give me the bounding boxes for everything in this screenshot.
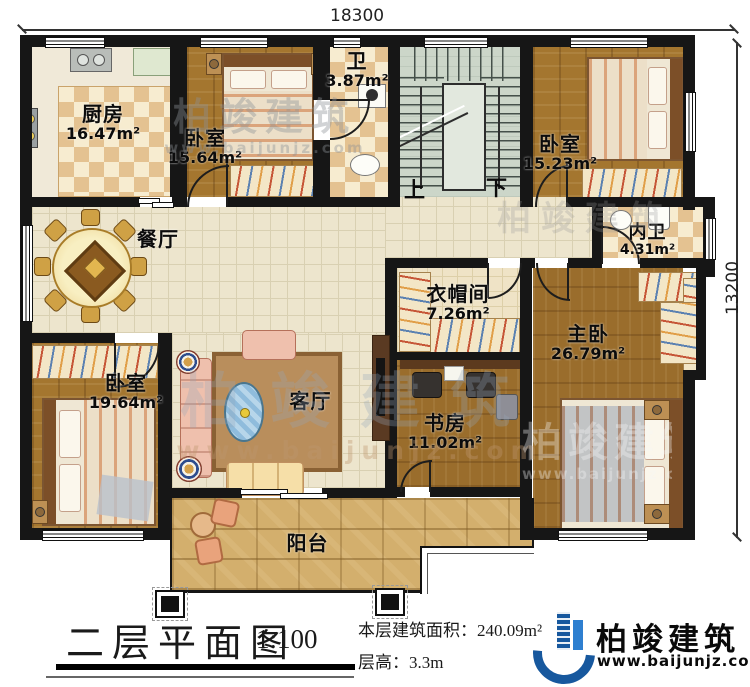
study-side-table: [496, 394, 518, 420]
cloakroom-area: 7.26m²: [398, 305, 518, 323]
logo-building-2: [573, 620, 583, 650]
top-dimension-label: 18300: [330, 6, 384, 26]
wall-kitchen-bedroom1: [170, 47, 187, 197]
study-label: 书房 11.02m²: [395, 412, 495, 452]
nightstand: [644, 504, 670, 524]
side-table-bottom: [176, 456, 202, 482]
wall-nook-right: [696, 268, 706, 370]
wall-kitchen-bottom: [20, 197, 140, 207]
wall-living-balcony-left: [172, 488, 242, 498]
nightstand: [32, 500, 48, 524]
armchair: [242, 330, 296, 360]
right-dimension-label: 13200: [723, 261, 743, 315]
table-decor: [240, 408, 250, 418]
stairs-up-label: 上: [404, 174, 425, 204]
drawing-scale: 1:100: [256, 624, 318, 655]
tv-cabinet: [372, 335, 390, 441]
floor-height-text: 层高：3.3m: [358, 648, 443, 673]
bedroom3-throw: [96, 475, 153, 522]
living-name: 客厅: [268, 390, 353, 412]
wall-living-balcony-right: [322, 488, 397, 498]
wall-bath-bottom: [330, 197, 400, 207]
bedroom2-side-window: [684, 92, 696, 152]
bedroom1-door-leaf: [226, 163, 228, 207]
study-pad: [444, 366, 464, 381]
bath-window: [333, 36, 361, 48]
cloakroom-label: 衣帽间 7.26m²: [398, 283, 518, 323]
kitchen-label: 厨房 16.47m²: [43, 103, 163, 143]
wall-bedroom1-bath-lower: [313, 140, 330, 197]
master-wardrobe-side: [660, 302, 698, 364]
study-name: 书房: [395, 412, 495, 434]
bedroom1-window: [200, 36, 268, 48]
wall-study-bottom: [430, 487, 522, 497]
study-chair-1: [412, 372, 442, 398]
living-label: 客厅: [268, 390, 353, 412]
inner-bath-window: [704, 218, 716, 260]
coffee-table: [224, 382, 264, 442]
bedroom2-label: 卧室 15.23m²: [505, 133, 615, 173]
balcony-notch: [420, 546, 534, 594]
pillow: [230, 70, 266, 89]
table-centerpiece: [64, 240, 126, 302]
title-underline-thick: [56, 664, 355, 670]
balcony-cushion-2: [194, 536, 224, 566]
wall-outer-right-lower: [683, 370, 695, 540]
bedroom1-area: 15.64m²: [150, 149, 260, 167]
nightstand: [206, 53, 222, 75]
column-right: [375, 588, 405, 616]
nightstand: [644, 400, 670, 420]
master-headboard: [669, 400, 682, 528]
dining-name: 餐厅: [118, 228, 198, 250]
column-left: [155, 590, 185, 618]
bath-label: 卫 3.87m²: [325, 50, 389, 90]
dining-chair: [81, 209, 100, 226]
bedroom3-area: 19.64m²: [66, 394, 186, 412]
wall-bedroom3-right: [158, 333, 172, 540]
sink-bowl-2: [93, 54, 105, 66]
dining-chair: [34, 257, 51, 276]
dining-chair: [130, 257, 147, 276]
inner-bath-door-leaf: [601, 226, 603, 264]
floor-plan-page: 18300 13200: [0, 0, 750, 687]
dining-chair: [81, 306, 100, 323]
study-chair-2: [466, 372, 496, 398]
bedroom3-name: 卧室: [66, 372, 186, 394]
wall-stub-1: [172, 197, 187, 207]
stair-landing: [442, 83, 486, 191]
bedroom3-window: [42, 529, 144, 541]
kitchen-fridge: [133, 48, 171, 76]
title-underline-thin: [46, 676, 354, 678]
wall-hall-south-2: [520, 258, 535, 268]
master-area: 26.79m²: [528, 345, 648, 363]
bedroom2-headboard: [670, 59, 682, 159]
floor-area-text: 本层建筑面积：240.09m²: [358, 616, 542, 641]
pillow: [271, 70, 307, 89]
wall-stairs-bedroom2: [520, 47, 533, 197]
pillow: [648, 67, 667, 105]
logo-building-1: [557, 612, 570, 650]
bedroom2-area: 15.23m²: [505, 155, 615, 173]
bath-door-leaf: [330, 99, 370, 101]
stairs-down-label: 下: [486, 172, 507, 202]
study-area: 11.02m²: [395, 434, 495, 452]
kitchen-sliding-door-2: [152, 202, 174, 208]
tv-screen: [376, 358, 385, 416]
master-door-leaf: [567, 263, 569, 300]
centerpiece-inner: [84, 257, 107, 280]
wall-cloak-bottom: [385, 352, 520, 360]
bedroom2-name: 卧室: [505, 133, 615, 155]
bedroom1-name: 卧室: [150, 127, 260, 149]
top-dimension-line: [22, 29, 735, 31]
brand-logo-icon: [533, 608, 593, 674]
balcony-label: 阳台: [265, 532, 350, 554]
stairs-window: [424, 36, 488, 48]
study-door-leaf: [429, 460, 431, 492]
wall-stub-2: [520, 197, 533, 207]
bedroom1-label: 卧室 15.64m²: [150, 127, 260, 167]
kitchen-name: 厨房: [43, 103, 163, 125]
brand-website: www.baijunjz.com: [597, 652, 750, 670]
wall-hall-south-3: [568, 258, 602, 268]
pillow: [648, 111, 667, 149]
kitchen-area: 16.47m²: [43, 125, 163, 143]
dining-window: [21, 225, 33, 322]
side-table-top: [176, 350, 200, 374]
master-window: [558, 529, 648, 541]
cloakroom-name: 衣帽间: [398, 283, 518, 305]
pillow: [59, 410, 81, 458]
bedroom3-bed: [42, 398, 156, 526]
wall-hall-south-1: [385, 258, 488, 268]
balcony-cushion-1: [210, 498, 241, 529]
wall-bedroom3-top: [20, 333, 115, 343]
wall-bath-stairs: [388, 47, 400, 197]
bedroom1-headboard: [224, 55, 312, 67]
kitchen-window: [45, 36, 105, 48]
balcony-notch-inner-line: [427, 553, 534, 594]
kitchen-sink: [70, 48, 112, 72]
master-label: 主卧 26.79m²: [528, 323, 648, 363]
master-name: 主卧: [528, 323, 648, 345]
bedroom3-label: 卧室 19.64m²: [66, 372, 186, 412]
pillow: [59, 464, 81, 512]
inner-bath-label: 内卫 4.31m²: [605, 223, 690, 259]
bath-sink: [350, 154, 380, 176]
sink-bowl-1: [77, 54, 89, 66]
bath-area: 3.87m²: [325, 72, 389, 90]
dining-label: 餐厅: [118, 228, 198, 250]
wall-bedroom1-bottom: [227, 197, 330, 207]
inner-bath-name: 内卫: [605, 223, 690, 243]
balcony-name: 阳台: [265, 532, 350, 554]
bedroom2-top-window: [570, 36, 648, 48]
master-blanket: [562, 406, 644, 522]
wall-bedroom2-bottom: [568, 197, 683, 207]
inner-bath-area: 4.31m²: [605, 243, 690, 259]
balcony-sliding-door-2: [280, 493, 328, 499]
stair-top-rails: [414, 47, 506, 81]
bath-name: 卫: [325, 50, 389, 72]
